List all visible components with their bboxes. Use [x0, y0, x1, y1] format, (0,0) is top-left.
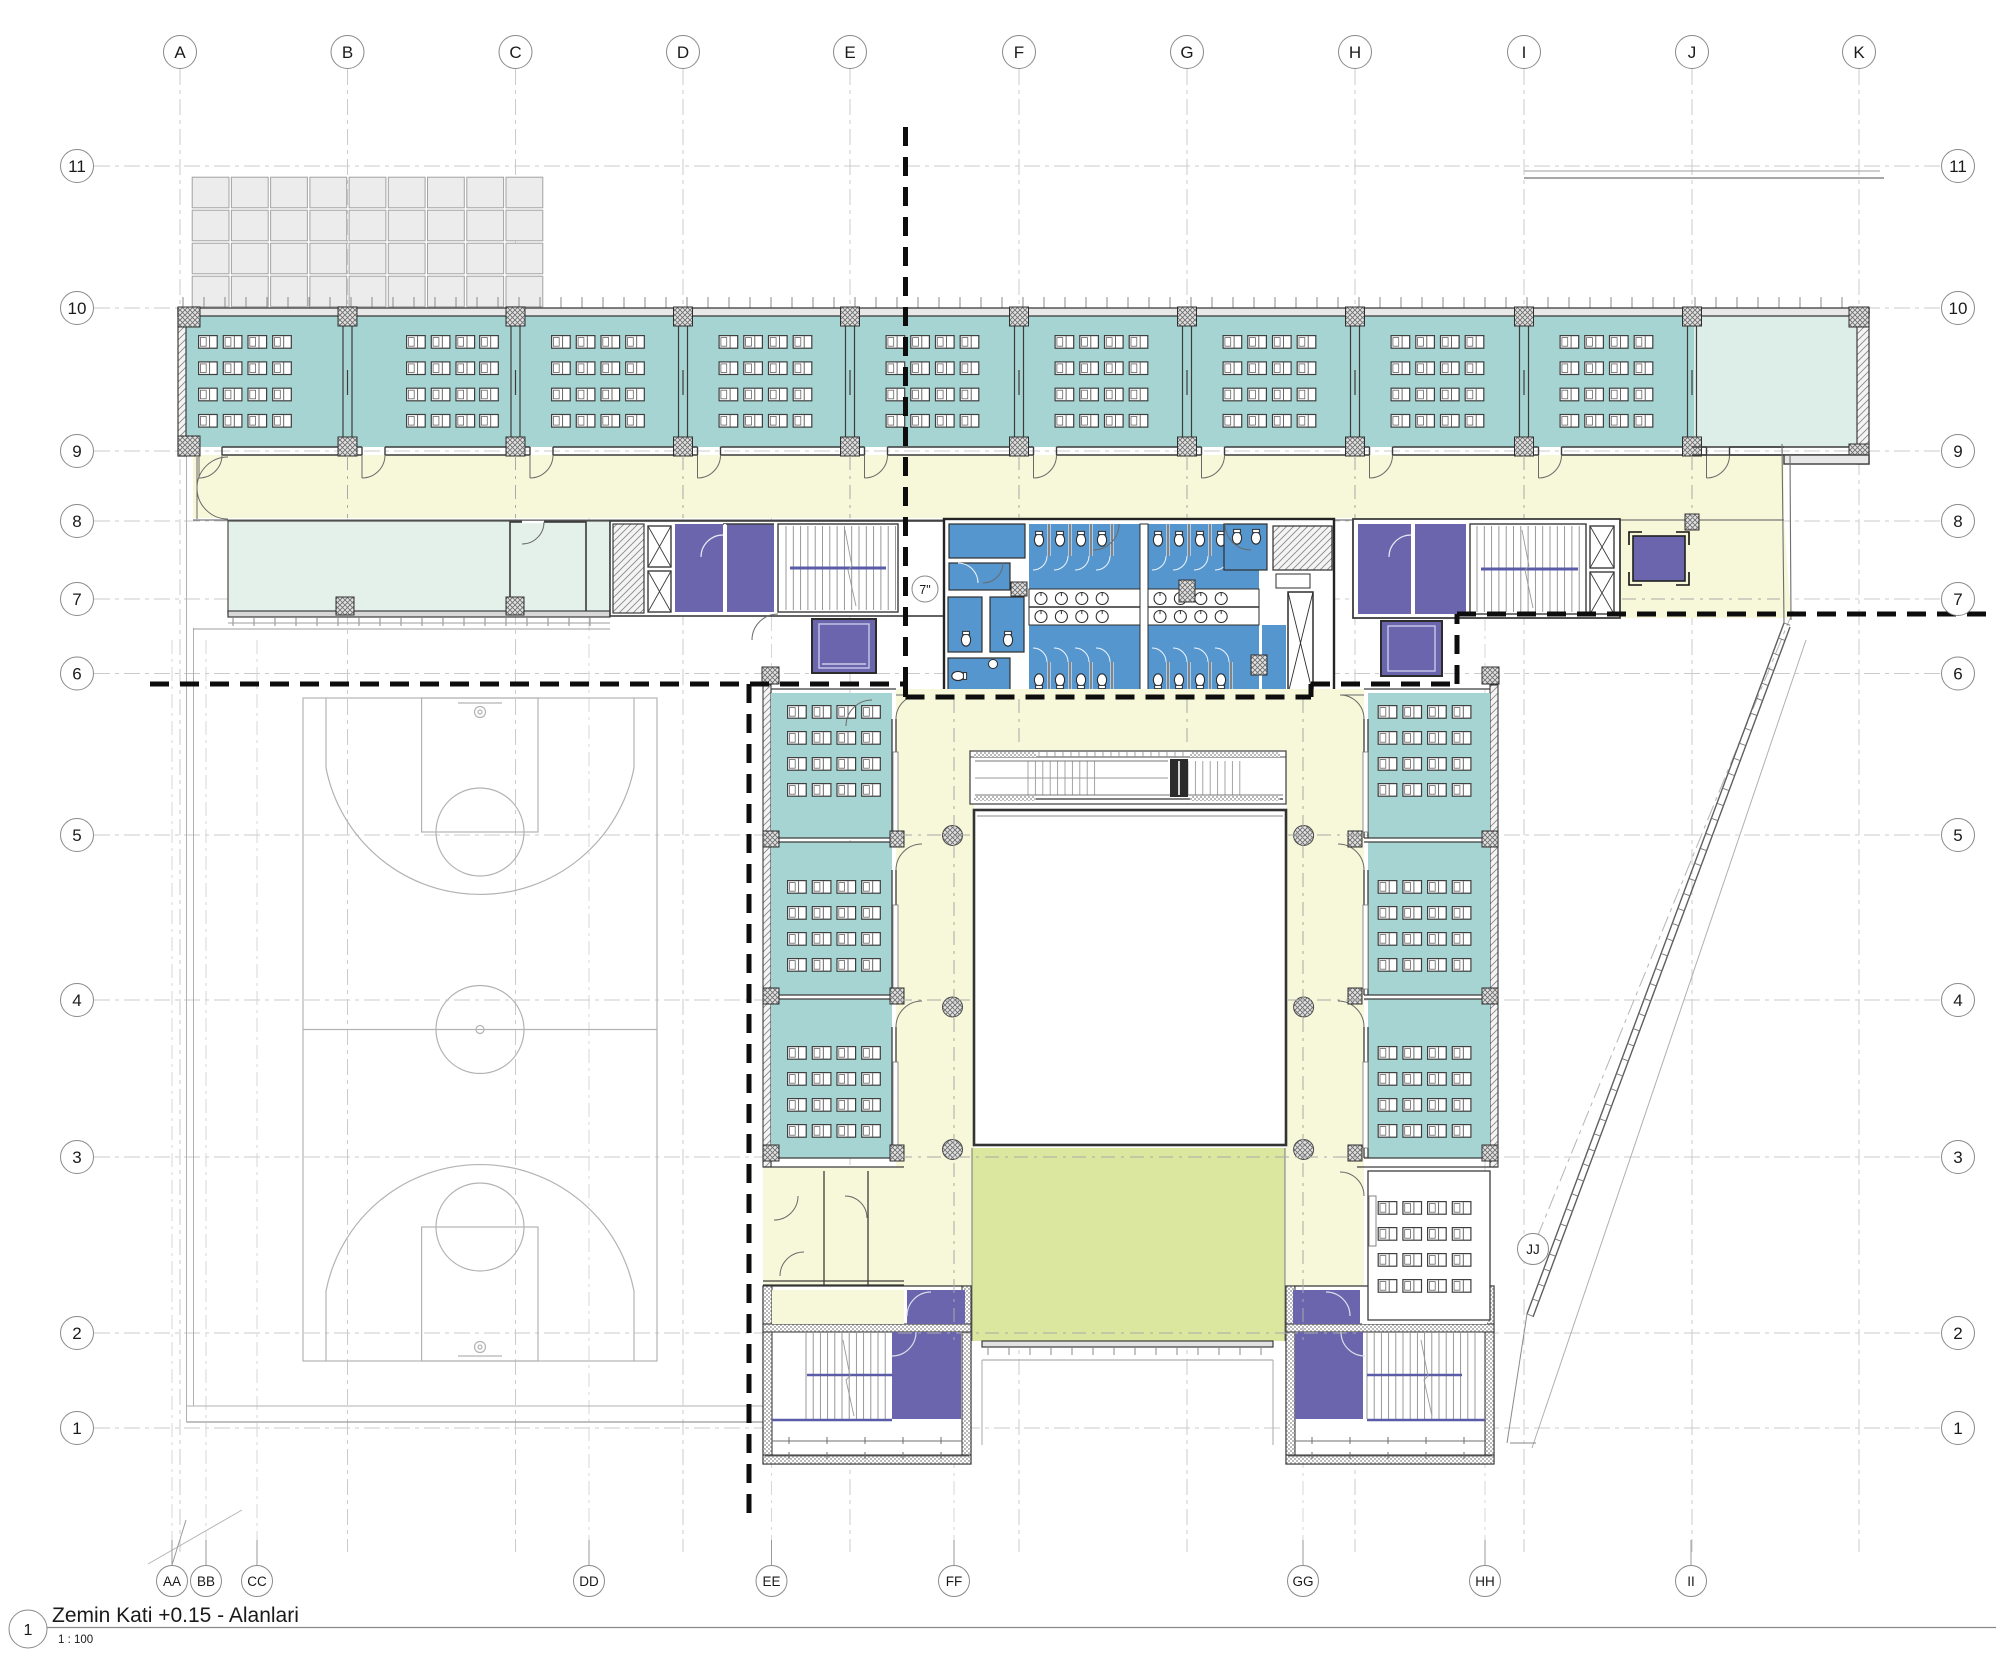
svg-text:GG: GG	[1292, 1574, 1313, 1589]
svg-text:1: 1	[1953, 1419, 1962, 1438]
svg-text:8: 8	[72, 512, 81, 531]
svg-text:6: 6	[1953, 665, 1962, 684]
svg-text:JJ: JJ	[1526, 1242, 1540, 1257]
svg-text:E: E	[844, 43, 855, 62]
svg-text:B: B	[342, 43, 353, 62]
svg-text:2: 2	[1953, 1324, 1962, 1343]
svg-text:7: 7	[1953, 590, 1962, 609]
svg-text:C: C	[509, 43, 521, 62]
svg-text:J: J	[1688, 43, 1697, 62]
svg-text:AA: AA	[163, 1574, 181, 1589]
svg-text:10: 10	[1949, 299, 1968, 318]
svg-text:F: F	[1014, 43, 1024, 62]
svg-text:D: D	[677, 43, 689, 62]
svg-text:10: 10	[68, 299, 87, 318]
svg-text:A: A	[174, 43, 186, 62]
svg-text:II: II	[1687, 1574, 1695, 1589]
svg-text:K: K	[1853, 43, 1865, 62]
svg-text:Zemin Kati +0.15 - Alanlari: Zemin Kati +0.15 - Alanlari	[52, 1604, 299, 1627]
svg-text:11: 11	[68, 157, 86, 176]
svg-text:1: 1	[72, 1419, 81, 1438]
svg-text:DD: DD	[579, 1574, 599, 1589]
svg-text:7": 7"	[919, 583, 930, 597]
svg-text:1: 1	[24, 1622, 33, 1639]
svg-text:CC: CC	[247, 1574, 267, 1589]
svg-text:FF: FF	[946, 1574, 963, 1589]
svg-text:1 : 100: 1 : 100	[58, 1634, 93, 1646]
svg-text:3: 3	[72, 1148, 81, 1167]
svg-text:6: 6	[72, 665, 81, 684]
svg-text:I: I	[1522, 43, 1527, 62]
svg-text:EE: EE	[762, 1574, 780, 1589]
svg-text:BB: BB	[197, 1574, 215, 1589]
svg-text:3: 3	[1953, 1148, 1962, 1167]
svg-text:8: 8	[1953, 512, 1962, 531]
svg-text:5: 5	[72, 826, 81, 845]
svg-text:HH: HH	[1475, 1574, 1495, 1589]
svg-text:11: 11	[1949, 157, 1967, 176]
svg-text:G: G	[1180, 43, 1193, 62]
svg-text:9: 9	[72, 442, 81, 461]
svg-text:7: 7	[72, 590, 81, 609]
svg-text:4: 4	[1953, 991, 1962, 1010]
svg-text:9: 9	[1953, 442, 1962, 461]
svg-text:4: 4	[72, 991, 81, 1010]
svg-text:2: 2	[72, 1324, 81, 1343]
svg-text:H: H	[1349, 43, 1361, 62]
svg-text:5: 5	[1953, 826, 1962, 845]
